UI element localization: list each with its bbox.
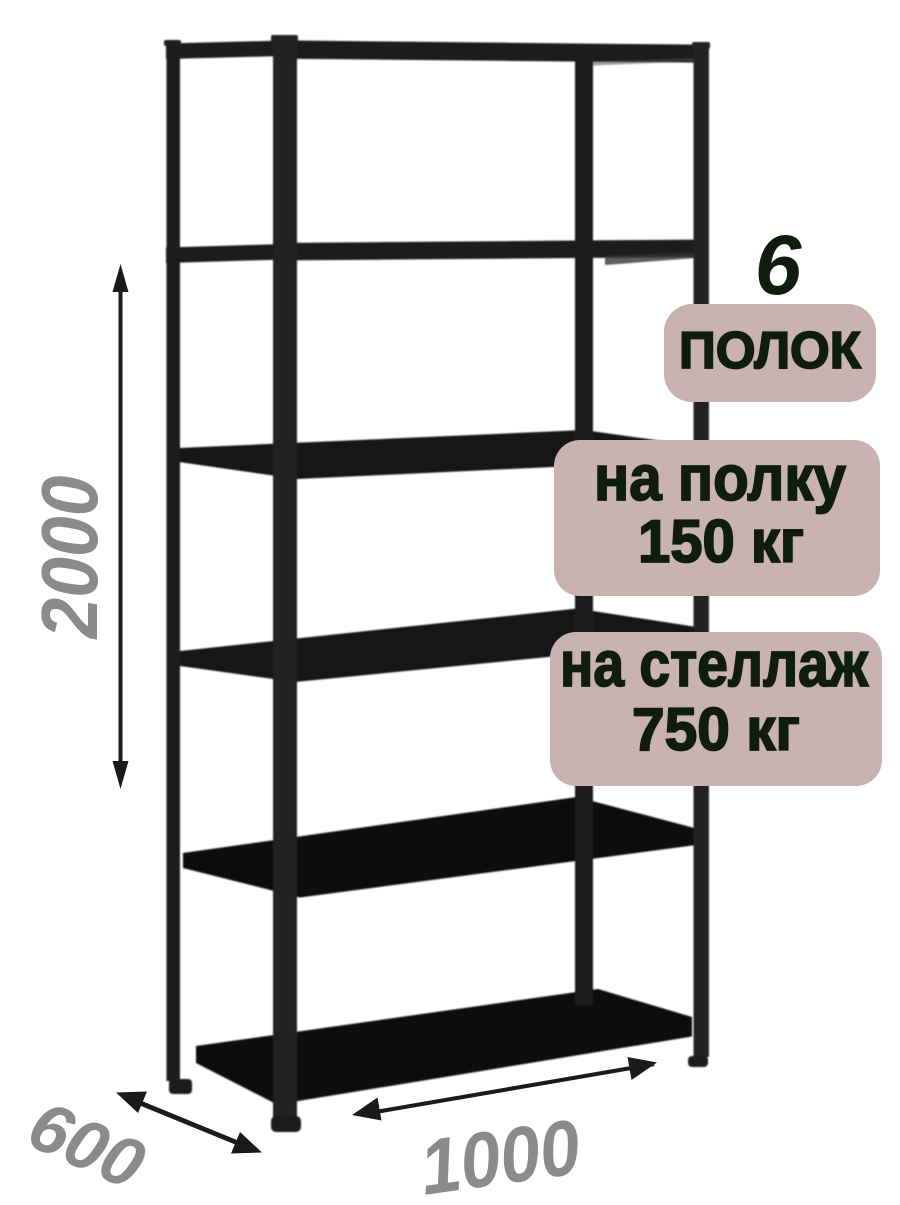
svg-text:6: 6 — [755, 218, 803, 312]
svg-text:750 кг: 750 кг — [632, 696, 800, 763]
svg-text:на стеллаж: на стеллаж — [560, 628, 869, 700]
svg-text:2000: 2000 — [25, 476, 114, 641]
svg-text:на полку: на полку — [594, 442, 846, 514]
svg-text:150 кг: 150 кг — [638, 508, 804, 575]
svg-text:ПОЛОК: ПОЛОК — [679, 322, 861, 380]
